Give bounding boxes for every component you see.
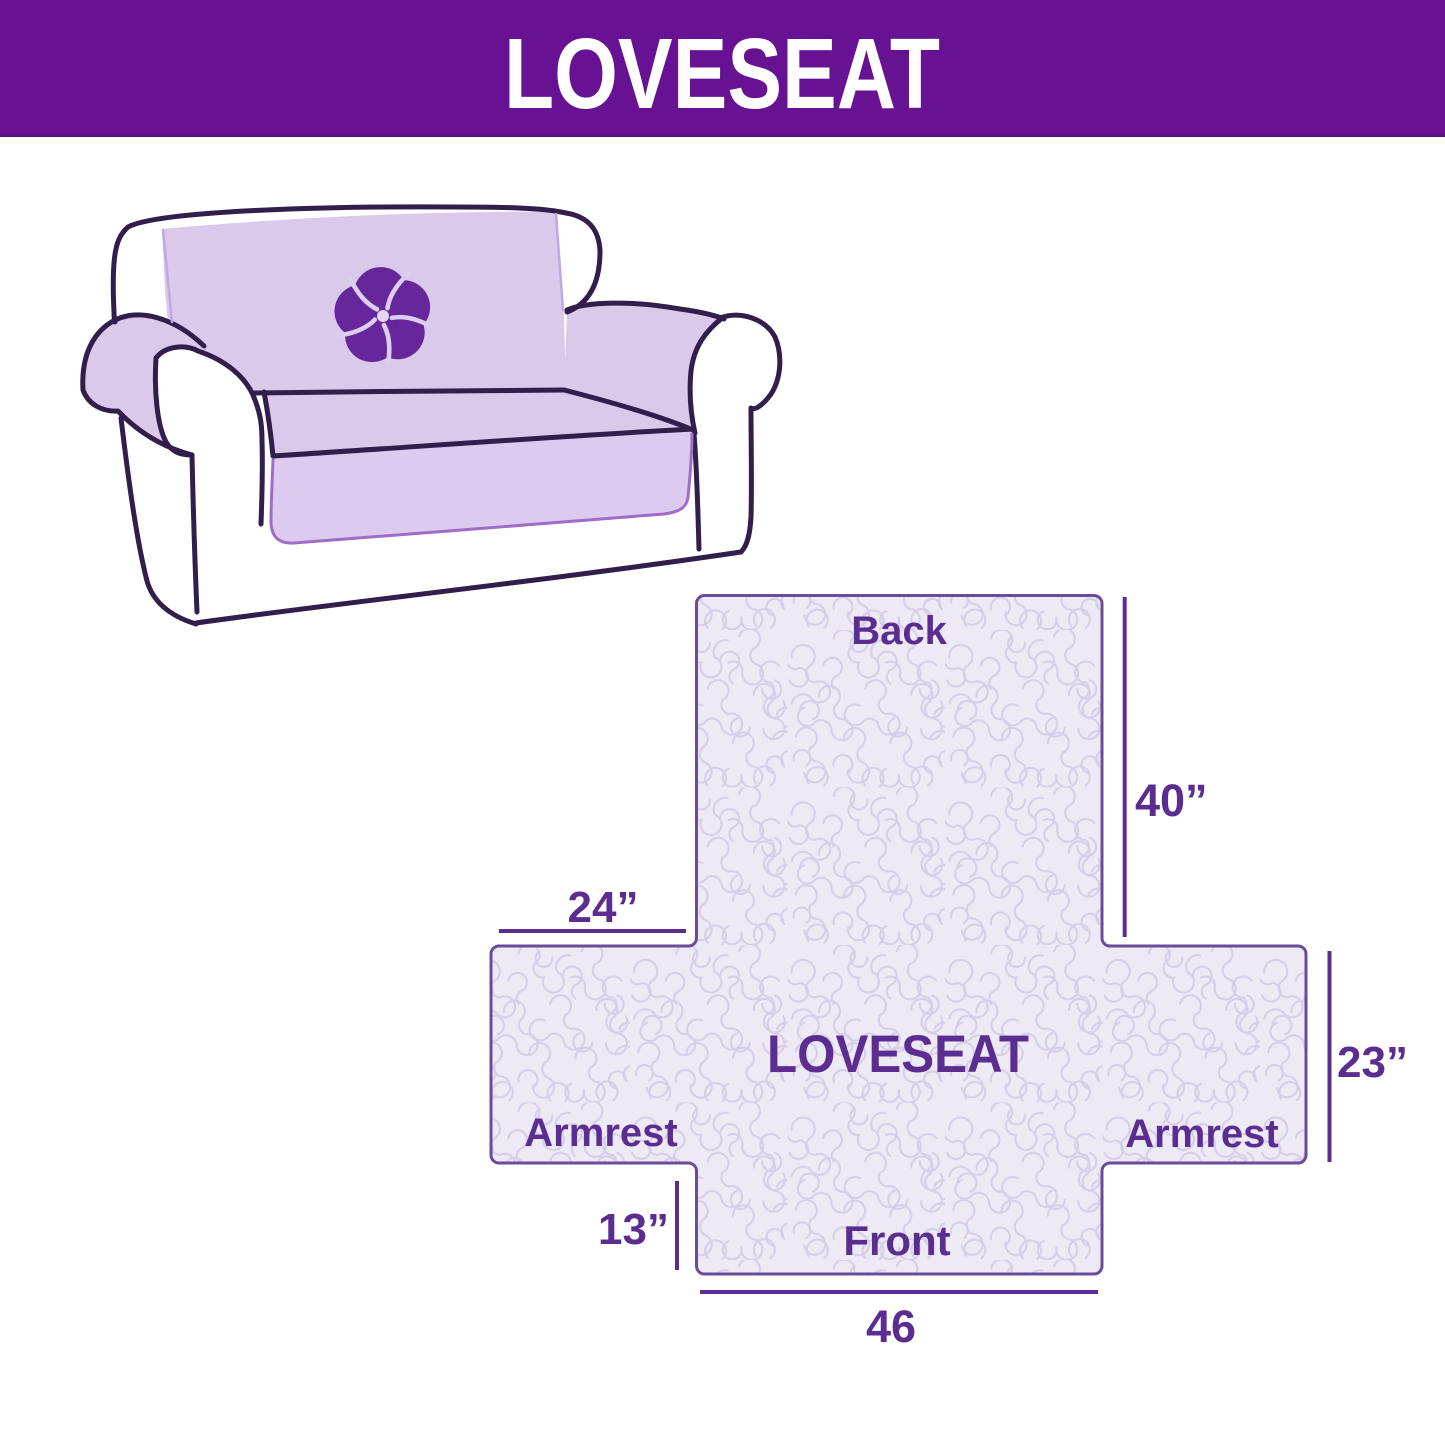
- svg-text:13”: 13”: [598, 1205, 669, 1254]
- svg-text:Back: Back: [851, 609, 947, 653]
- svg-text:Armrest: Armrest: [524, 1111, 677, 1155]
- svg-text:23”: 23”: [1337, 1038, 1408, 1087]
- svg-text:LOVESEAT: LOVESEAT: [767, 1025, 1029, 1084]
- svg-text:LOVESEAT: LOVESEAT: [504, 18, 940, 130]
- svg-text:24”: 24”: [568, 883, 639, 932]
- svg-text:40”: 40”: [1135, 775, 1208, 826]
- svg-text:Front: Front: [843, 1217, 950, 1264]
- svg-text:46: 46: [866, 1301, 916, 1352]
- svg-text:Armrest: Armrest: [1125, 1112, 1278, 1156]
